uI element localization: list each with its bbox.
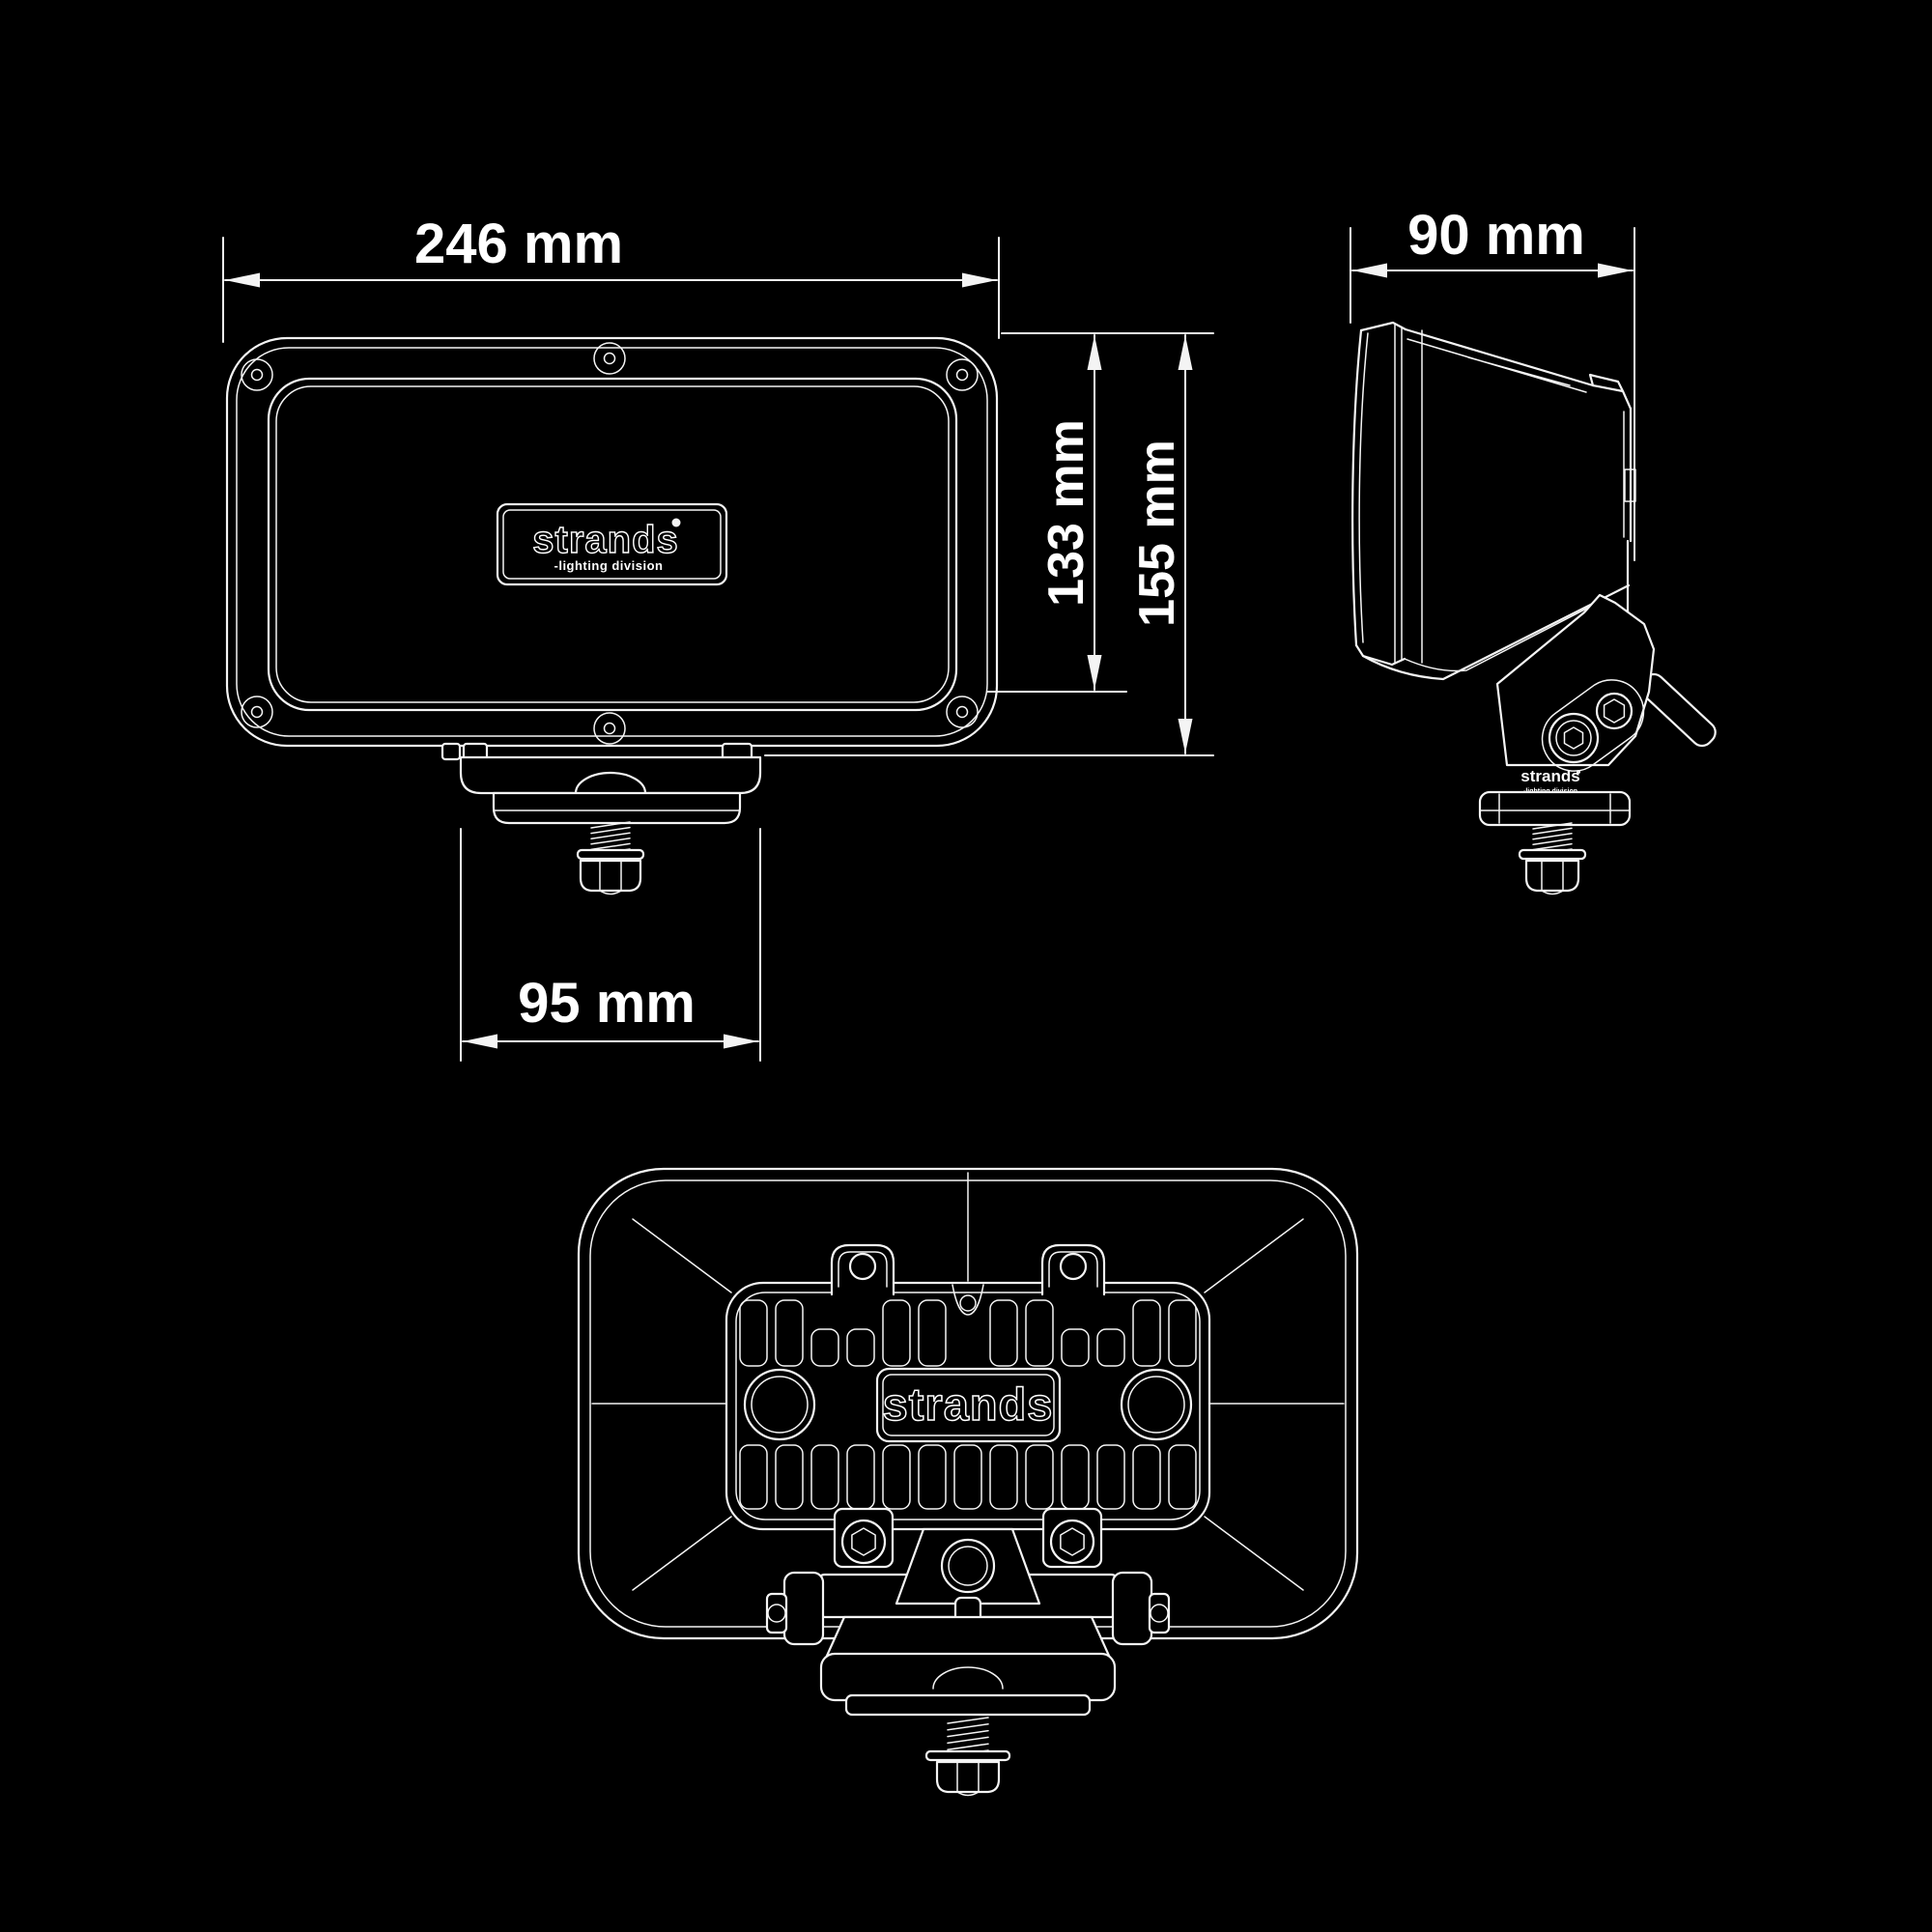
washer (1520, 850, 1585, 859)
screw-icon (252, 707, 263, 718)
brand-wordmark: strands (883, 1378, 1054, 1430)
screw-icon (947, 359, 978, 390)
hex-nut (581, 861, 640, 891)
hex-nut (1526, 861, 1578, 891)
washer (926, 1751, 1009, 1760)
screw-icon (957, 707, 968, 718)
mounting-ear (832, 1245, 894, 1294)
screw-icon (957, 370, 968, 381)
side-bracket: strands -lighting division (1497, 595, 1657, 795)
dimension-front-width: 246 mm (223, 213, 999, 342)
trademark-dot-icon (672, 519, 681, 527)
screw-icon (594, 713, 625, 744)
dimension-label: 90 mm (1407, 204, 1585, 267)
side-view: strands -lighting division (1352, 323, 1719, 895)
bracket-lower-plate (494, 793, 740, 823)
dimension-label: 155 mm (1129, 440, 1185, 627)
back-view: strands (579, 1169, 1357, 1796)
front-bracket (442, 744, 760, 895)
brand-tagline: -lighting division (554, 558, 664, 573)
brand-wordmark: strands (1520, 767, 1579, 785)
dimension-label: 246 mm (414, 213, 623, 275)
dimension-label: 95 mm (518, 972, 696, 1035)
screw-icon (241, 696, 272, 727)
screw-icon (605, 724, 615, 734)
screw-icon (252, 370, 263, 381)
mounting-bolt (578, 822, 643, 895)
base-foot-plate (821, 1654, 1115, 1700)
bracket-cylinder (1113, 1573, 1151, 1644)
dimension-drawing-canvas: strands -lighting division (0, 0, 1932, 1932)
back-bracket (767, 1509, 1169, 1796)
screw-icon (947, 696, 978, 727)
brand-wordmark: strands (532, 519, 679, 561)
base-upper (827, 1617, 1109, 1656)
dimension-label: 133 mm (1038, 419, 1094, 607)
mounting-bolt (926, 1718, 1009, 1796)
mounting-bolt (1520, 823, 1585, 895)
screw-icon (605, 354, 615, 364)
side-lens-rim (1352, 323, 1422, 665)
screw-icon (241, 359, 272, 390)
brand-logo-front: strands -lighting division (497, 504, 726, 584)
bracket-cylinder (784, 1573, 823, 1644)
mounting-ear (1042, 1245, 1104, 1294)
base-lip (846, 1695, 1090, 1715)
front-view: strands -lighting division (227, 338, 997, 895)
hex-nut (937, 1762, 999, 1792)
washer (578, 850, 643, 859)
trademark-dot-icon (1577, 770, 1580, 774)
side-foot (1480, 792, 1630, 895)
